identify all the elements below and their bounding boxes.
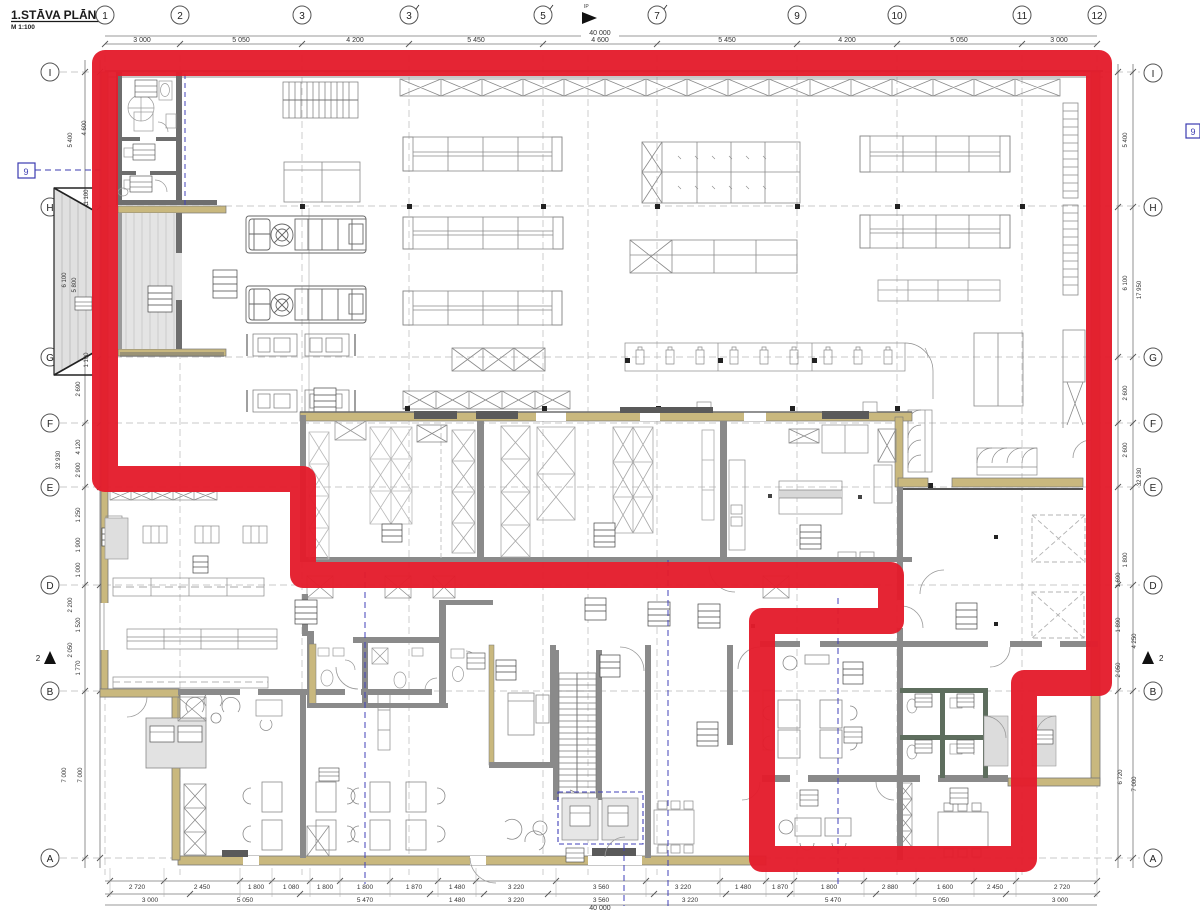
svg-text:1 600: 1 600	[937, 884, 954, 891]
svg-text:1 520: 1 520	[76, 617, 82, 633]
svg-text:2 050: 2 050	[68, 642, 74, 658]
svg-text:2 450: 2 450	[194, 884, 211, 891]
svg-text:1 250: 1 250	[76, 507, 82, 523]
svg-text:5 400: 5 400	[68, 132, 74, 148]
svg-text:5 050: 5 050	[933, 897, 950, 904]
svg-text:6 100: 6 100	[62, 272, 68, 288]
svg-text:1 080: 1 080	[283, 884, 300, 891]
svg-text:1 800: 1 800	[357, 884, 374, 891]
svg-text:F: F	[1150, 419, 1156, 430]
svg-text:9: 9	[23, 167, 28, 177]
svg-text:D: D	[46, 581, 53, 592]
svg-text:1 800: 1 800	[317, 884, 334, 891]
svg-text:17 950: 17 950	[1137, 280, 1143, 299]
svg-text:3 220: 3 220	[508, 897, 525, 904]
svg-text:5 400: 5 400	[1123, 132, 1129, 148]
svg-text:1 000: 1 000	[76, 562, 82, 578]
svg-text:7: 7	[654, 11, 660, 22]
svg-text:9: 9	[794, 11, 800, 22]
svg-text:1.STĀVA PLĀNS: 1.STĀVA PLĀNS	[11, 8, 104, 22]
svg-text:1: 1	[102, 11, 108, 22]
svg-text:G: G	[46, 353, 54, 364]
svg-text:E: E	[47, 483, 54, 494]
svg-text:10: 10	[891, 11, 903, 22]
svg-text:F: F	[47, 419, 53, 430]
svg-text:5 470: 5 470	[825, 897, 842, 904]
svg-text:5 050: 5 050	[950, 37, 968, 44]
svg-text:3 220: 3 220	[508, 884, 525, 891]
svg-text:6 720: 6 720	[1118, 769, 1124, 785]
svg-text:3 000: 3 000	[142, 897, 159, 904]
svg-text:3 220: 3 220	[682, 897, 699, 904]
svg-text:A: A	[1150, 854, 1157, 865]
svg-text:M 1:100: M 1:100	[11, 24, 35, 31]
svg-text:1 870: 1 870	[772, 884, 789, 891]
svg-text:1 770: 1 770	[76, 660, 82, 676]
svg-text:H: H	[1149, 203, 1156, 214]
svg-text:3 000: 3 000	[1050, 37, 1068, 44]
svg-text:1 480: 1 480	[449, 897, 466, 904]
svg-text:5 050: 5 050	[232, 37, 250, 44]
svg-text:7 000: 7 000	[1132, 776, 1138, 792]
svg-text:2: 2	[177, 11, 183, 22]
svg-text:2 900: 2 900	[76, 462, 82, 478]
svg-text:D: D	[1149, 581, 1156, 592]
svg-text:2: 2	[36, 654, 41, 663]
svg-text:3 560: 3 560	[593, 884, 610, 891]
svg-text:2 720: 2 720	[1054, 884, 1071, 891]
svg-text:B: B	[1150, 687, 1157, 698]
svg-text:1 100: 1 100	[84, 352, 90, 368]
svg-text:4 600: 4 600	[82, 120, 88, 136]
svg-text:2 450: 2 450	[987, 884, 1004, 891]
svg-text:1 900: 1 900	[76, 537, 82, 553]
svg-text:5 800: 5 800	[72, 277, 78, 293]
svg-text:3: 3	[406, 11, 412, 22]
svg-text:3 220: 3 220	[675, 884, 692, 891]
svg-text:4 250: 4 250	[1132, 633, 1138, 649]
svg-text:7 000: 7 000	[62, 767, 68, 783]
svg-text:1 890: 1 890	[1116, 617, 1122, 633]
svg-text:4 120: 4 120	[76, 439, 82, 455]
svg-text:5 450: 5 450	[718, 37, 736, 44]
svg-text:2: 2	[1159, 654, 1164, 663]
svg-text:IP: IP	[584, 4, 589, 10]
svg-text:40 000: 40 000	[589, 30, 611, 37]
svg-text:I: I	[1152, 69, 1155, 80]
svg-text:3: 3	[299, 11, 305, 22]
svg-text:7 000: 7 000	[78, 767, 84, 783]
svg-text:E: E	[1150, 483, 1157, 494]
svg-text:9: 9	[1190, 127, 1195, 137]
svg-text:1 800: 1 800	[248, 884, 265, 891]
svg-text:1 100: 1 100	[84, 189, 90, 205]
svg-text:3 000: 3 000	[1052, 897, 1069, 904]
svg-text:5: 5	[540, 11, 546, 22]
svg-text:H: H	[46, 203, 53, 214]
svg-text:32 930: 32 930	[56, 450, 62, 469]
svg-text:1 690: 1 690	[1116, 572, 1122, 588]
svg-text:1 480: 1 480	[735, 884, 752, 891]
svg-text:1 800: 1 800	[821, 884, 838, 891]
svg-text:6 100: 6 100	[1123, 275, 1129, 291]
svg-text:1 870: 1 870	[406, 884, 423, 891]
svg-text:4 200: 4 200	[838, 37, 856, 44]
svg-text:I: I	[49, 68, 52, 79]
svg-text:4 200: 4 200	[346, 37, 364, 44]
svg-text:2 200: 2 200	[68, 597, 74, 613]
svg-text:2 720: 2 720	[129, 884, 146, 891]
svg-text:2 880: 2 880	[882, 884, 899, 891]
svg-text:3 560: 3 560	[593, 897, 610, 904]
svg-text:5 470: 5 470	[357, 897, 374, 904]
svg-text:B: B	[47, 687, 54, 698]
svg-text:2 600: 2 600	[1123, 385, 1129, 401]
svg-text:32 930: 32 930	[1137, 467, 1143, 486]
svg-text:1 480: 1 480	[449, 884, 466, 891]
svg-text:5 450: 5 450	[467, 37, 485, 44]
svg-text:G: G	[1149, 353, 1157, 364]
svg-text:A: A	[47, 854, 54, 865]
svg-text:2 690: 2 690	[76, 381, 82, 397]
svg-text:2 050: 2 050	[1116, 662, 1122, 678]
svg-text:3 000: 3 000	[133, 37, 151, 44]
svg-text:40 000: 40 000	[589, 905, 611, 911]
svg-text:5 050: 5 050	[237, 897, 254, 904]
svg-text:1 800: 1 800	[1123, 552, 1129, 568]
svg-text:12: 12	[1091, 11, 1103, 22]
svg-text:2 600: 2 600	[1123, 442, 1129, 458]
svg-text:4 600: 4 600	[591, 37, 609, 44]
svg-text:11: 11	[1017, 11, 1028, 22]
